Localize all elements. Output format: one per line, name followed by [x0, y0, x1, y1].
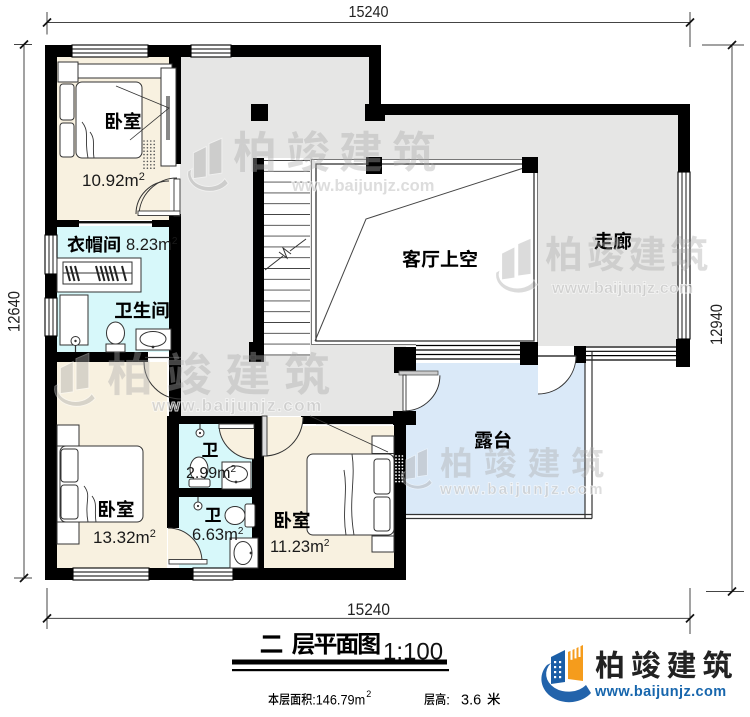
svg-text:12640: 12640 — [6, 291, 24, 332]
svg-text:6.63m2: 6.63m2 — [192, 526, 244, 544]
svg-text:15240: 15240 — [347, 601, 390, 619]
svg-text:www.baijunjz.com: www.baijunjz.com — [291, 177, 434, 195]
svg-text:10.92m2: 10.92m2 — [82, 171, 145, 190]
svg-text:13.32m2: 13.32m2 — [93, 528, 156, 547]
svg-text::146.79m: :146.79m — [312, 692, 365, 708]
svg-text:15240: 15240 — [349, 4, 389, 21]
svg-text:3.6: 3.6 — [461, 693, 481, 709]
svg-text:2.99m2: 2.99m2 — [186, 464, 236, 482]
svg-text:www.baijunjz.com: www.baijunjz.com — [151, 396, 323, 415]
svg-text:www.baijunjz.com: www.baijunjz.com — [551, 280, 693, 297]
svg-text::: : — [446, 692, 450, 708]
svg-text:8.23m2: 8.23m2 — [126, 236, 178, 254]
svg-text:www.baijunjz.com: www.baijunjz.com — [439, 481, 605, 498]
svg-text:www.baijunjz.com: www.baijunjz.com — [594, 684, 727, 700]
svg-text:12940: 12940 — [708, 304, 726, 345]
svg-text:2: 2 — [366, 689, 371, 699]
svg-text:11.23m2: 11.23m2 — [270, 538, 330, 556]
